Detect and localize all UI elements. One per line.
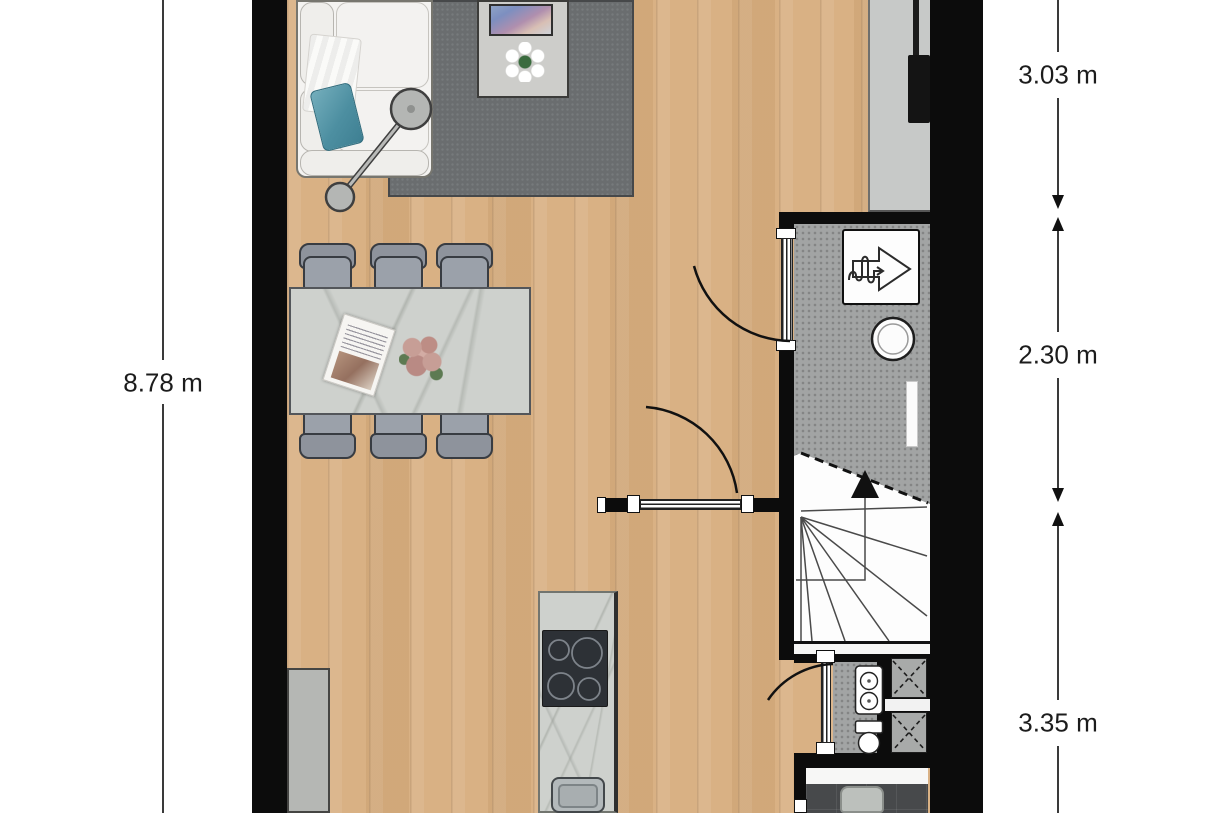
dimension-label-right: 3.35 m <box>1018 708 1098 739</box>
white-flower <box>505 42 545 82</box>
sofa <box>296 0 433 178</box>
dimension-line-right <box>1057 98 1059 195</box>
technical-room-door-leaf <box>781 238 793 341</box>
wc-floor <box>833 662 877 753</box>
door-jamb <box>627 495 640 513</box>
tv <box>913 0 919 57</box>
door-jamb <box>816 742 835 755</box>
dimension-label-right: 2.30 m <box>1018 340 1098 371</box>
door-jamb <box>741 495 754 513</box>
door-jamb <box>597 497 606 513</box>
wall-technical-room-top <box>779 212 930 224</box>
dimension-line-right <box>1057 526 1059 700</box>
dimension-line-right <box>1057 378 1059 488</box>
tv <box>908 55 930 123</box>
coffee-table <box>477 0 569 98</box>
wall-left-exterior <box>252 0 287 813</box>
dimension-arrow-down <box>1052 195 1064 209</box>
dimension-arrow-up <box>1052 217 1064 231</box>
floorplan-canvas: 8.78 m 3.03 m 2.30 m 3.35 m <box>0 0 1220 813</box>
dimension-label-right: 3.03 m <box>1018 60 1098 91</box>
towel-radiator <box>906 381 918 447</box>
bathroom-fixture <box>840 786 884 813</box>
duct-shaft <box>891 712 927 753</box>
shower-tray <box>806 768 928 784</box>
duct-shaft <box>891 658 927 698</box>
stair-landing <box>794 641 930 654</box>
cooktop <box>542 630 608 707</box>
bathroom-top-wall <box>794 753 930 768</box>
dimension-label-left: 8.78 m <box>123 368 203 399</box>
framed-photo <box>489 4 553 36</box>
dimension-line-right <box>1057 231 1059 332</box>
dimension-line-left <box>162 404 164 813</box>
sofa-armrest <box>300 150 429 176</box>
dimension-line-left <box>162 0 164 360</box>
wc-door-leaf <box>821 662 831 743</box>
wall-hall-right-segment <box>754 498 794 512</box>
kitchen-sink <box>551 777 605 813</box>
sink-basin <box>558 784 598 808</box>
flower-bouquet <box>399 333 443 381</box>
heat-pump-unit <box>842 229 920 305</box>
door-jamb <box>794 799 807 813</box>
dimension-line-right <box>1057 746 1059 813</box>
kitchen-counter-left <box>287 668 330 813</box>
hall-door-leaf <box>640 499 741 510</box>
door-jamb <box>776 340 796 351</box>
dimension-arrow-up <box>1052 512 1064 526</box>
magazine <box>323 313 396 396</box>
chair-back <box>436 433 493 459</box>
shaft-gap <box>885 699 930 711</box>
dimension-arrow-down <box>1052 488 1064 502</box>
dimension-line-right <box>1057 0 1059 52</box>
chair-back <box>370 433 427 459</box>
chair-back <box>299 433 356 459</box>
wall-right-exterior <box>930 0 983 813</box>
dining-table <box>289 287 531 415</box>
